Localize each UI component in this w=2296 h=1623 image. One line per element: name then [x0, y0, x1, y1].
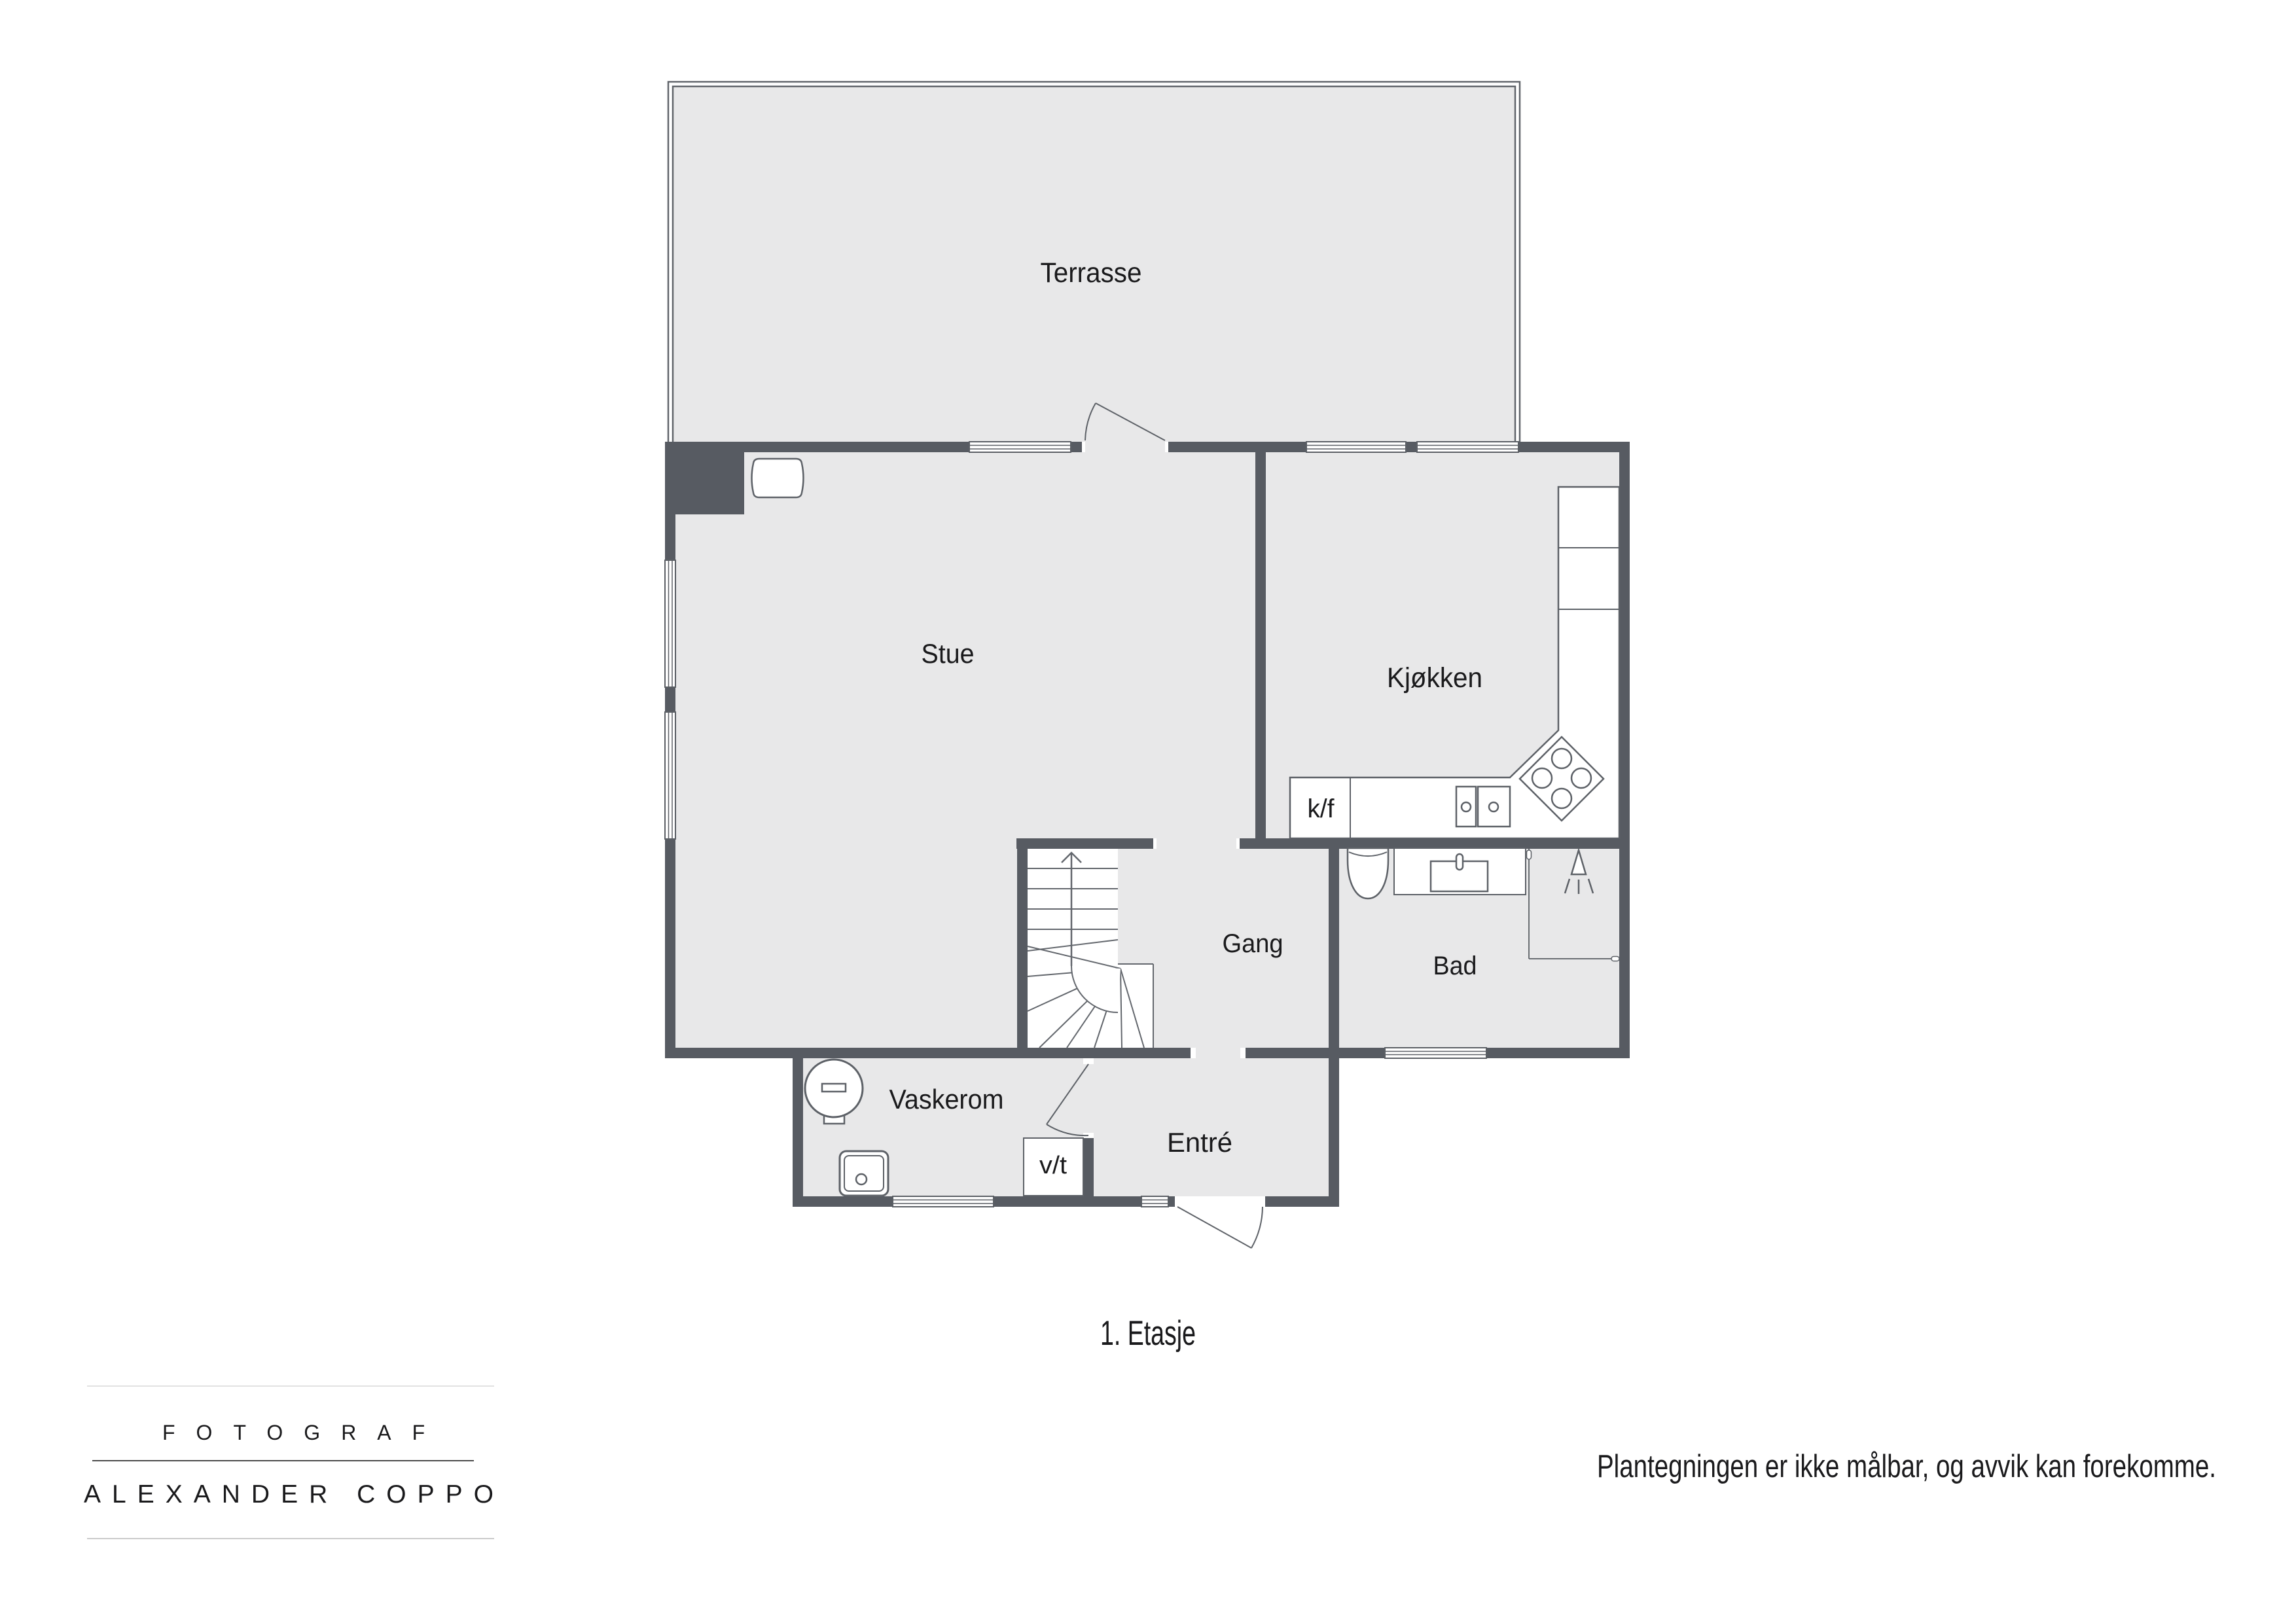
- svg-text:Entré: Entré: [1167, 1127, 1232, 1158]
- svg-text:k/f: k/f: [1308, 794, 1335, 823]
- svg-text:v/t: v/t: [1039, 1152, 1067, 1179]
- svg-text:ALEXANDER COPPO: ALEXANDER COPPO: [84, 1480, 505, 1508]
- svg-text:Bad: Bad: [1433, 952, 1477, 980]
- svg-text:FOTOGRAF: FOTOGRAF: [162, 1421, 446, 1444]
- svg-text:1. Etasje: 1. Etasje: [1100, 1314, 1196, 1353]
- svg-text:Kjøkken: Kjøkken: [1387, 662, 1482, 694]
- svg-text:Plantegningen er ikke målbar,: Plantegningen er ikke målbar, og avvik k…: [1597, 1449, 2216, 1484]
- svg-text:Gang: Gang: [1223, 929, 1283, 958]
- svg-text:Vaskerom: Vaskerom: [889, 1084, 1004, 1115]
- svg-text:Stue: Stue: [922, 638, 975, 669]
- svg-text:Terrasse: Terrasse: [1041, 257, 1142, 289]
